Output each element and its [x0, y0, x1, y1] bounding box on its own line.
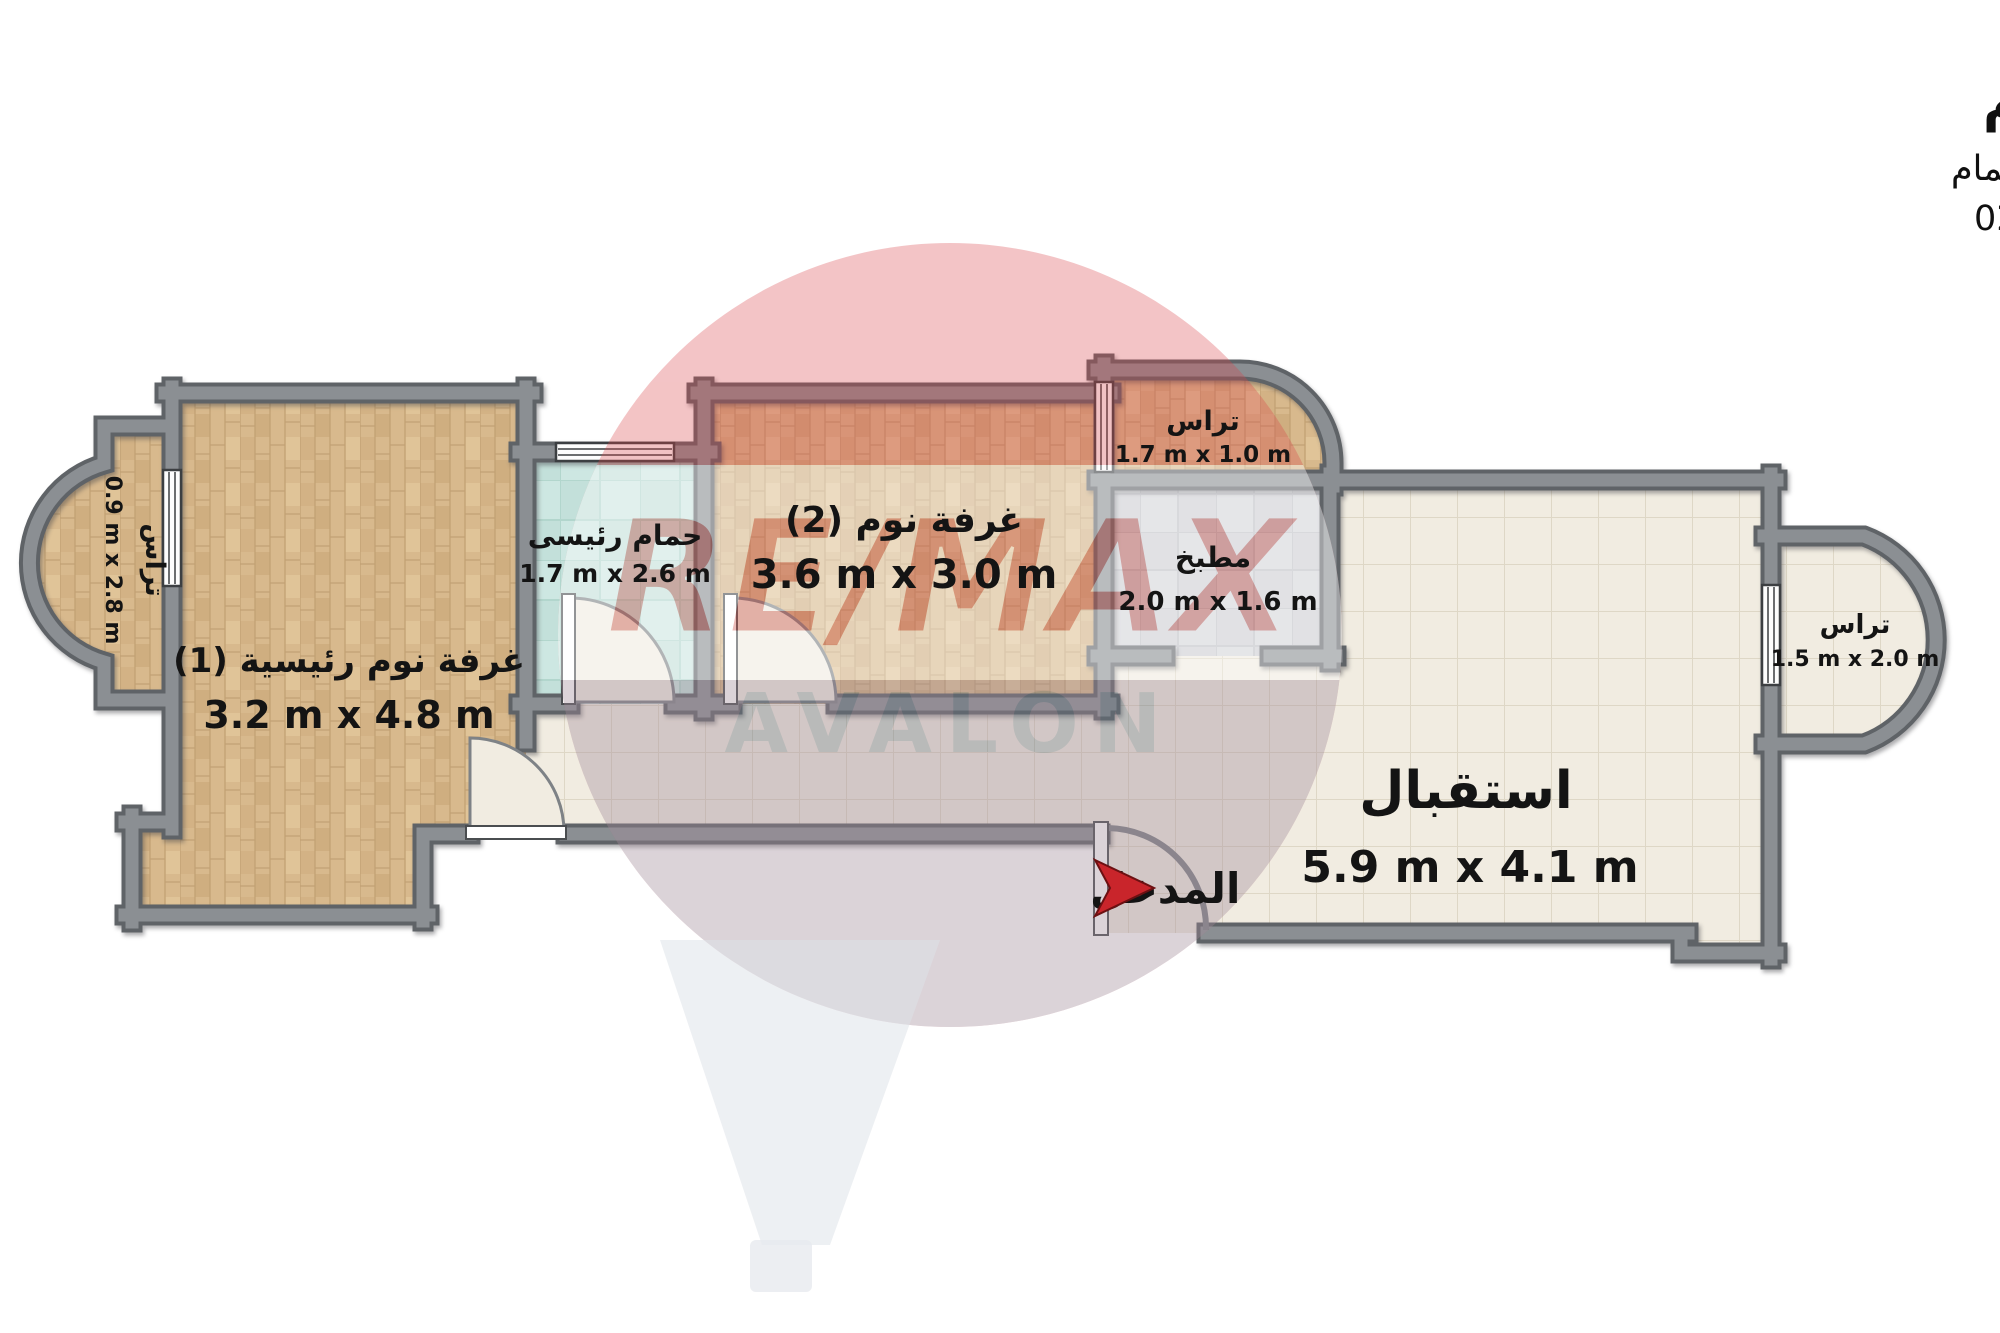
terrace-left-dims: 0.9 m x 2.8 m	[100, 476, 125, 645]
kitchen-label: مطبخ	[1175, 541, 1251, 574]
master-bedroom-dims: 3.2 m x 4.8 m	[203, 693, 494, 737]
reception-dims: 5.9 m x 4.1 m	[1301, 842, 1638, 893]
page-subtitle: 2غرف + 2 رسيبشن + 1 حمام	[1951, 149, 2000, 189]
kitchen-dims: 2.0 m x 1.6 m	[1118, 587, 1317, 617]
bedroom2-label: غرفة نوم (2)	[785, 500, 1023, 541]
watermark: RE/MAX AVALON	[540, 243, 1360, 1292]
balloon-tail	[660, 940, 940, 1245]
balloon-basket	[750, 1240, 812, 1292]
listing-code: كود : 021726	[1974, 199, 2000, 239]
avalon-text: AVALON	[725, 677, 1176, 772]
terrace-top-label: تراس	[1166, 406, 1239, 437]
floorplan-page: RE/MAX AVALON غرفة نوم رئيسية (1) 3.2 m …	[0, 0, 2000, 1333]
reception-label: استقبال	[1359, 761, 1572, 821]
terrace-left-label: تراس	[139, 523, 170, 596]
page-title: شاليه للبيع - الساحل الشمالي - كورال هيل…	[1983, 73, 2000, 133]
master-bathroom-dims: 1.7 m x 2.6 m	[519, 559, 711, 588]
terrace-right-dims: 1.5 m x 2.0 m	[1771, 647, 1940, 672]
master-bedroom-door-leaf	[466, 826, 566, 839]
master-bathroom-label: حمام رئيسى	[528, 519, 703, 552]
title-block: شاليه للبيع - الساحل الشمالي - كورال هيل…	[1951, 73, 2000, 239]
floorplan-canvas: RE/MAX AVALON غرفة نوم رئيسية (1) 3.2 m …	[0, 0, 2000, 1333]
master-bedroom-label: غرفة نوم رئيسية (1)	[173, 641, 525, 681]
terrace-top-dims: 1.7 m x 1.0 m	[1115, 442, 1291, 468]
terrace-right-label: تراس	[1820, 610, 1891, 640]
bedroom2-dims: 3.6 m x 3.0 m	[751, 552, 1058, 598]
